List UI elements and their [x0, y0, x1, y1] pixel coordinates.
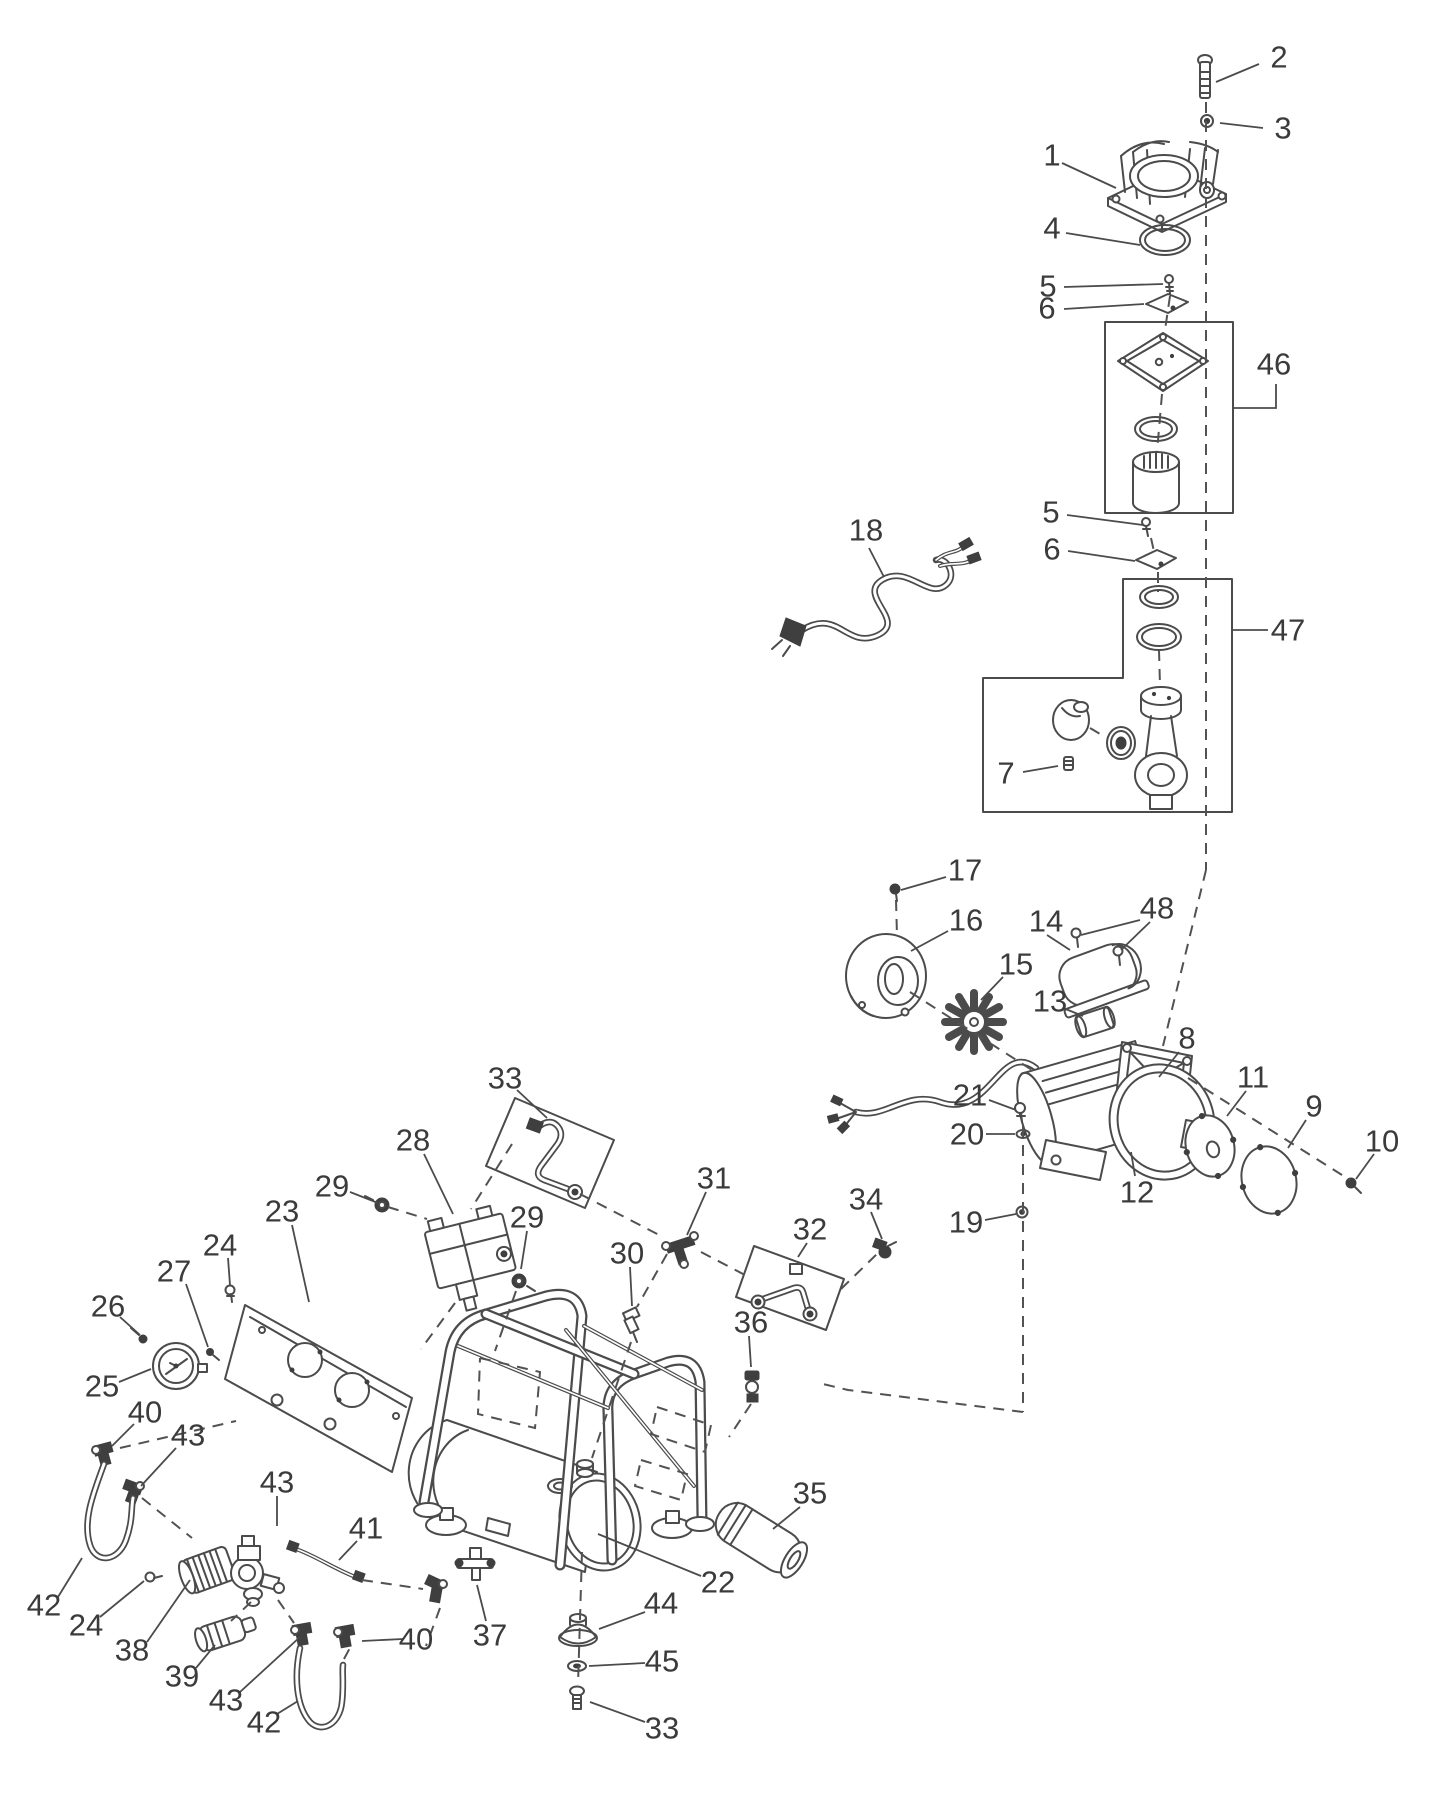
- leader-line-24b: [100, 1581, 144, 1617]
- callout-22: 22: [701, 1565, 735, 1600]
- motor-lead-wires: [827, 1062, 1036, 1133]
- callout-43c: 43: [209, 1683, 243, 1718]
- leader-line-23: [292, 1225, 309, 1302]
- callout-30: 30: [610, 1236, 644, 1271]
- callout-45: 45: [645, 1644, 679, 1679]
- callout-18: 18: [849, 513, 883, 548]
- leader-line-37: [477, 1585, 486, 1621]
- leader-line-5b: [1067, 515, 1143, 525]
- part-30-fitting: [623, 1307, 639, 1342]
- callout-46: 46: [1257, 347, 1291, 382]
- leader-line-48: [1081, 920, 1140, 935]
- dashed-line-11: [841, 1252, 879, 1289]
- callout-2: 2: [1270, 40, 1287, 75]
- leader-line-17: [901, 877, 946, 890]
- part-42-hose-left: [87, 1464, 133, 1558]
- leader-line-5a: [1064, 284, 1163, 287]
- leader-line-1: [1062, 163, 1116, 188]
- callout-19: 19: [949, 1205, 983, 1240]
- callout-29a: 29: [315, 1169, 349, 1204]
- callout-37: 37: [473, 1618, 507, 1653]
- dashed-line-32: [1159, 650, 1160, 686]
- leader-line-29a: [350, 1192, 378, 1203]
- callout-layer: 1234564656471871716151448138212019121191…: [27, 40, 1399, 1746]
- part-24-screw-lower: [146, 1573, 163, 1582]
- callout-43b: 43: [260, 1465, 294, 1500]
- part-37-drain-valve: [455, 1548, 495, 1580]
- leader-line-43a: [141, 1448, 176, 1486]
- leader-line-6a: [1064, 304, 1144, 309]
- callout-15: 15: [999, 947, 1033, 982]
- callout-24b: 24: [69, 1608, 103, 1643]
- callout-35: 35: [793, 1476, 827, 1511]
- part-27-screw: [207, 1349, 220, 1361]
- callout-33a: 33: [488, 1061, 522, 1096]
- part-38-regulator: [176, 1536, 284, 1606]
- leader-line-29b: [521, 1231, 527, 1269]
- dashed-line-29: [1157, 394, 1162, 452]
- part-25-gauge: [153, 1343, 207, 1389]
- diagram-root: 1234564656471871716151448138212019121191…: [0, 0, 1445, 1795]
- part-33-screw-bottom: [570, 1687, 584, 1710]
- part-44-rubber-foot: [559, 1614, 597, 1646]
- part-47-bearing: [1107, 727, 1135, 759]
- part-45-washer: [568, 1661, 586, 1671]
- leader-line-36: [749, 1336, 751, 1367]
- leader-line-19: [985, 1214, 1016, 1220]
- dashed-line-21: [142, 1498, 192, 1538]
- leader-line-2: [1216, 64, 1259, 82]
- diagram-canvas: 1234564656471871716151448138212019121191…: [0, 0, 1445, 1795]
- part-17-screw: [890, 884, 900, 901]
- leader-line-4: [1066, 233, 1140, 245]
- dashed-line-19: [729, 1404, 751, 1437]
- leader-line-38: [147, 1580, 190, 1642]
- part-42-hose-bottom: [297, 1648, 343, 1727]
- callout-26: 26: [91, 1289, 125, 1324]
- leader-line-31: [687, 1192, 706, 1235]
- callout-39: 39: [165, 1659, 199, 1694]
- callout-8: 8: [1178, 1021, 1195, 1056]
- callout-40b: 40: [399, 1622, 433, 1657]
- leader-line-3: [1220, 123, 1263, 128]
- callout-20: 20: [950, 1117, 984, 1152]
- callout-33b: 33: [645, 1711, 679, 1746]
- callout-43a: 43: [171, 1418, 205, 1453]
- dashed-line-23: [362, 1580, 423, 1589]
- callout-4: 4: [1043, 211, 1060, 246]
- leader-line-40b: [362, 1639, 403, 1641]
- part-36-safety-valve: [745, 1371, 759, 1402]
- callout-41: 41: [349, 1511, 383, 1546]
- callout-27: 27: [157, 1254, 191, 1289]
- callout-23: 23: [265, 1194, 299, 1229]
- callout-36: 36: [734, 1305, 768, 1340]
- part-41-tube: [287, 1541, 365, 1583]
- part-33-tube-plate: [486, 1098, 614, 1208]
- leader-line-27: [186, 1284, 208, 1347]
- part-47-piston-rod: [1135, 687, 1187, 809]
- callout-24a: 24: [203, 1228, 237, 1263]
- leader-line-21: [989, 1100, 1016, 1110]
- part-2-bolt: [1198, 55, 1212, 98]
- leader-line-45: [589, 1663, 645, 1666]
- callout-6b: 6: [1043, 532, 1060, 567]
- dashed-line-3: [896, 900, 897, 936]
- callout-32: 32: [793, 1212, 827, 1247]
- callout-38: 38: [115, 1633, 149, 1668]
- callout-28: 28: [396, 1123, 430, 1158]
- callout-6a: 6: [1038, 291, 1055, 326]
- callout-47: 47: [1271, 613, 1305, 648]
- leader-line-43c: [240, 1637, 300, 1692]
- dashed-line-9: [580, 1194, 663, 1237]
- part-28-pressure-switch: [422, 1203, 523, 1316]
- callout-40a: 40: [128, 1395, 162, 1430]
- part-6-gasket-upper: [1146, 294, 1188, 313]
- callout-9: 9: [1305, 1089, 1322, 1124]
- part-15-fan: [945, 993, 1003, 1051]
- callout-10: 10: [1365, 1124, 1399, 1159]
- callout-17: 17: [948, 853, 982, 888]
- part-5-screw-upper: [1165, 275, 1173, 294]
- dashed-line-25: [278, 1600, 294, 1623]
- callout-12: 12: [1120, 1175, 1154, 1210]
- callout-48: 48: [1140, 891, 1174, 926]
- part-5-screw-lower: [1142, 518, 1150, 536]
- part-29-fitting-right: [512, 1274, 535, 1291]
- callout-31: 31: [697, 1161, 731, 1196]
- part-6-gasket-lower: [1136, 550, 1176, 569]
- leader-line-25: [119, 1369, 151, 1382]
- callout-11: 11: [1237, 1060, 1269, 1095]
- callout-1: 1: [1043, 138, 1060, 173]
- part-16-end-bell: [846, 934, 926, 1018]
- callout-21: 21: [953, 1078, 987, 1113]
- part-24-screw-upper: [226, 1286, 235, 1303]
- leader-line-28: [424, 1154, 453, 1214]
- callout-5b: 5: [1042, 495, 1059, 530]
- dashed-line-6: [819, 1383, 1023, 1412]
- callout-13: 13: [1033, 984, 1067, 1019]
- part-46-valve-plate-kit: [1105, 322, 1233, 513]
- part-48-screw-a: [1072, 929, 1081, 948]
- part-31-tee-fitting: [662, 1232, 698, 1268]
- leader-line-18: [869, 548, 884, 577]
- part-40-elbow-bottom: [334, 1625, 355, 1648]
- callout-14: 14: [1029, 904, 1063, 939]
- callout-44: 44: [644, 1586, 678, 1621]
- callout-7: 7: [997, 756, 1014, 791]
- leader-line-6b: [1068, 551, 1135, 561]
- callout-29b: 29: [510, 1200, 544, 1235]
- part-7-set-screw: [1064, 757, 1073, 770]
- callout-42a: 42: [27, 1588, 61, 1623]
- leader-line-33b: [590, 1702, 645, 1722]
- dashed-line-7: [388, 1207, 427, 1219]
- leader-line-9: [1288, 1120, 1306, 1148]
- leader-line-42a: [58, 1558, 82, 1597]
- callout-16: 16: [949, 903, 983, 938]
- callout-3: 3: [1274, 111, 1291, 146]
- part-4-o-ring: [1140, 225, 1190, 255]
- callout-34: 34: [849, 1182, 883, 1217]
- part-40-elbow-mid: [425, 1575, 447, 1603]
- callout-42b: 42: [247, 1705, 281, 1740]
- leader-line-46: [1233, 384, 1276, 408]
- dashed-line-33: [1090, 728, 1105, 737]
- part-39-coupler: [193, 1611, 259, 1654]
- dashed-line-10: [701, 1252, 745, 1275]
- leader-line-48-1: [1121, 922, 1150, 950]
- leader-line-30: [630, 1267, 632, 1306]
- part-10-screw: [1346, 1178, 1361, 1193]
- leader-line-16: [911, 931, 948, 951]
- part-23-control-panel: [225, 1305, 412, 1472]
- part-47-piston-kit: [983, 579, 1232, 812]
- part-9-gasket: [1231, 1137, 1307, 1223]
- part-18-power-cord: [772, 538, 981, 656]
- part-1-cylinder-head: [1108, 141, 1226, 232]
- part-47-counterweight: [1053, 700, 1089, 740]
- leader-line-7: [1023, 766, 1058, 772]
- leader-line-44: [599, 1612, 645, 1629]
- callout-25: 25: [85, 1369, 119, 1404]
